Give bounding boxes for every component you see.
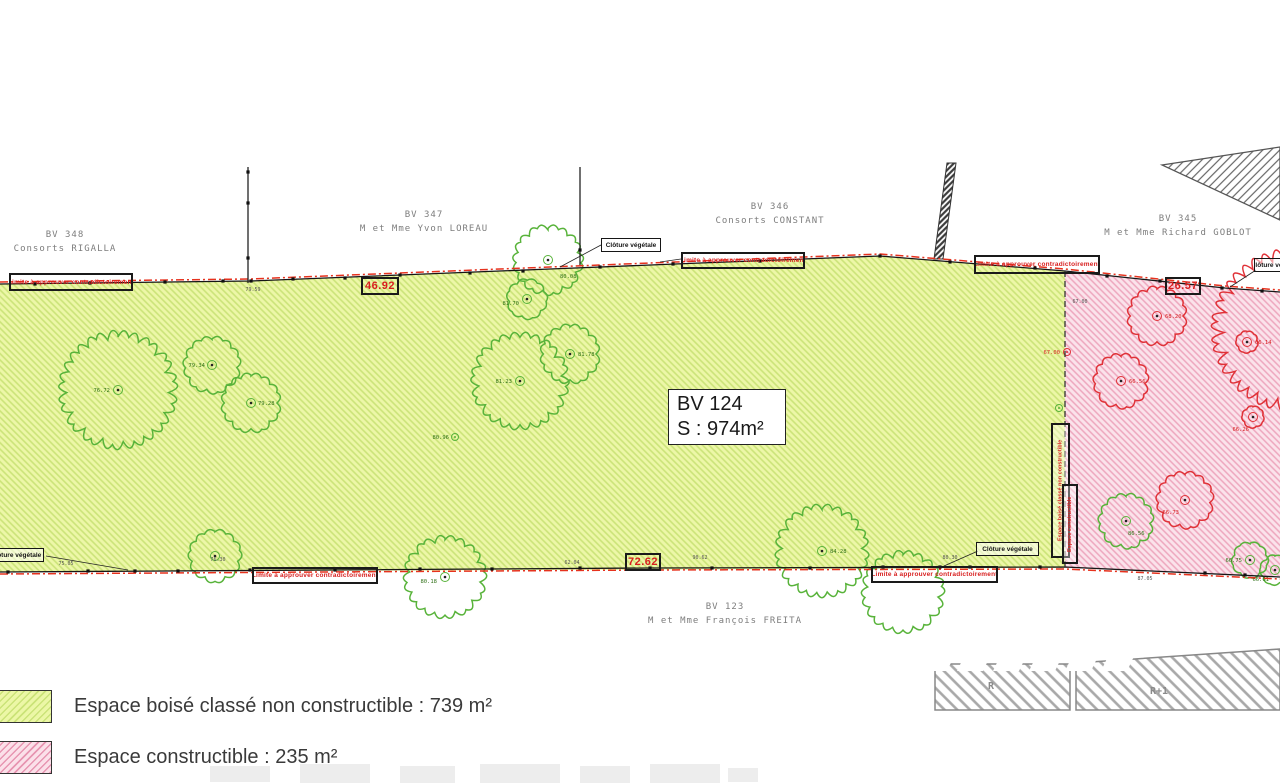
watermark-remnant — [210, 766, 270, 782]
tree-elevation-label: 66.75 — [1225, 558, 1242, 564]
survey-dot — [133, 569, 136, 572]
tree-elevation-label: 66.73 — [1162, 510, 1179, 516]
survey-dot — [1203, 571, 1206, 574]
tree-elevation-label: 81.23 — [495, 379, 512, 385]
distance-label: 90.62 — [692, 555, 707, 561]
tree-elevation-label: 81.78 — [578, 352, 595, 358]
survey-dot — [86, 569, 89, 572]
survey-dot — [968, 565, 971, 568]
survey-dot — [468, 271, 471, 274]
survey-dot — [246, 170, 249, 173]
distance-label: 67.00 — [1072, 299, 1087, 305]
survey-dot — [1105, 274, 1108, 277]
survey-dot — [938, 565, 941, 568]
watermark-remnant — [480, 764, 560, 783]
survey-dot — [758, 259, 761, 262]
survey-dot — [221, 279, 224, 282]
survey-dot — [333, 568, 336, 571]
survey-dot — [343, 276, 346, 279]
wall-symbol — [934, 163, 956, 259]
tree-elevation-label: 66.14 — [1255, 340, 1272, 346]
survey-dot — [881, 565, 884, 568]
survey-dot — [948, 260, 951, 263]
survey-dot — [1038, 565, 1041, 568]
survey-dot — [578, 248, 581, 251]
tree-elevation-label: 76.72 — [93, 388, 110, 394]
distance-label: 62.04 — [564, 560, 579, 566]
distance-label: 76.30 — [210, 557, 225, 563]
survey-dot — [418, 567, 421, 570]
tree-elevation-label: 81.70 — [502, 301, 519, 307]
survey-dot — [1033, 266, 1036, 269]
survey-dot — [246, 201, 249, 204]
survey-dot — [648, 566, 651, 569]
distance-label: 79.59 — [245, 287, 260, 293]
survey-dot — [246, 256, 249, 259]
tree-elevation-label: 79.34 — [188, 363, 205, 369]
survey-dot — [710, 566, 713, 569]
survey-dot — [1220, 286, 1223, 289]
site-plan-drawing: 76.7279.3479.2880.0881.7081.2381.7880.18… — [0, 0, 1280, 784]
survey-dot — [598, 265, 601, 268]
watermark-remnant — [400, 766, 455, 783]
tree-elevation-label: 79.28 — [258, 401, 275, 407]
tree-elevation-label: 80.08 — [560, 274, 577, 280]
tree-elevation-label: 84.28 — [830, 549, 847, 555]
zone-boise-classe — [0, 256, 1065, 572]
tree-elevation-label: 66.56 — [1129, 379, 1146, 385]
distance-label: 87.05 — [1137, 576, 1152, 582]
neighbor-building-hatch — [1162, 147, 1280, 220]
distance-label: 75.05 — [58, 561, 73, 567]
elevation-box-r1 — [1076, 649, 1280, 710]
survey-dot — [398, 273, 401, 276]
point-elevation-label: 67.00 — [1043, 350, 1060, 356]
tree-elevation-label: 66.26 — [1232, 427, 1249, 433]
survey-dot — [248, 568, 251, 571]
survey-dot — [521, 269, 524, 272]
survey-dot — [291, 277, 294, 280]
watermark-remnant — [300, 764, 370, 783]
survey-dot — [163, 280, 166, 283]
survey-dot — [808, 566, 811, 569]
survey-dot — [578, 566, 581, 569]
site-plan-canvas: 76.7279.3479.2880.0881.7081.2381.7880.18… — [0, 0, 1280, 784]
watermark-remnant — [580, 766, 630, 783]
watermark-remnant — [728, 768, 758, 782]
survey-dot — [33, 282, 36, 285]
tree-elevation-label: 86.56 — [1128, 531, 1145, 537]
survey-dot — [878, 254, 881, 257]
survey-dot — [1158, 279, 1161, 282]
survey-dot — [88, 281, 91, 284]
survey-dot — [176, 569, 179, 572]
survey-dot — [671, 262, 674, 265]
survey-dot — [490, 567, 493, 570]
tree-elevation-label: 68.20 — [1165, 314, 1182, 320]
survey-dot — [1243, 573, 1246, 576]
watermark-remnant — [650, 764, 720, 783]
survey-dot — [1260, 289, 1263, 292]
survey-dot — [249, 279, 252, 282]
tree-elevation-label: 80.18 — [420, 579, 437, 585]
point-elevation-label: 80.96 — [432, 435, 449, 441]
survey-dot — [6, 570, 9, 573]
distance-label: 80.30 — [942, 555, 957, 561]
